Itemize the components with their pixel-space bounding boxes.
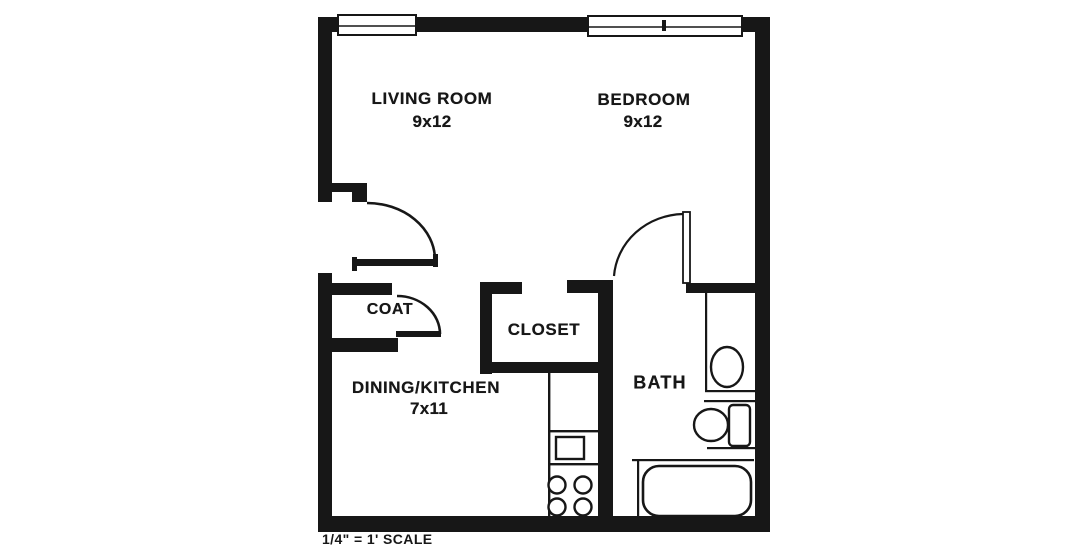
living-room-label: LIVING ROOM [372,89,493,109]
vanity-side-line [705,293,707,392]
bedroom-bath-wall [686,283,755,293]
closet-left-wall [480,282,492,374]
counter-edge-line [548,373,550,516]
bedroom-label: BEDROOM [598,90,691,110]
closet-label: CLOSET [508,320,581,340]
closet-top-wall-left [480,282,522,294]
toilet-bowl [694,409,728,441]
left-wall-lower [318,273,332,532]
dining-kitchen-dimensions: 7x11 [410,399,448,419]
bath-label: BATH [633,373,686,394]
scale-note: 1/4" = 1' SCALE [322,531,433,547]
tub-alcove-top-line [632,459,754,461]
bottom-wall [318,516,770,532]
bath-door-arc [614,214,683,276]
right-wall [755,17,770,532]
left-wall-upper [318,17,332,202]
bath-door-leaf [683,212,690,283]
floor-plan-drawing [0,0,1080,556]
tub-alcove-side-line [637,461,639,518]
range-burners [549,477,592,516]
right-window [588,16,742,36]
entry-door [352,203,438,271]
entry-door-arc [367,203,435,259]
coat-door-leaf [396,331,441,337]
window-mullion-tick [662,20,666,31]
dining-kitchen-label: DINING/KITCHEN [352,378,500,398]
toilet-alcove-bottom-line [707,447,755,449]
left-window [338,15,416,35]
vanity-sink [711,347,743,387]
toilet-tank [729,405,750,446]
bath-fixtures [632,293,755,518]
counter-divider-bottom [550,463,598,465]
vanity-front-line [705,390,755,392]
counter-divider-top [550,430,598,432]
coat-bottom-wall [328,338,398,352]
living-room-dimensions: 9x12 [412,112,451,132]
coat-top-wall [328,283,392,295]
closet-bath-wall [598,280,613,532]
entry-door-leaf [353,259,438,266]
floor-plan-page: LIVING ROOM 9x12 BEDROOM 9x12 COAT CLOSE… [0,0,1080,556]
bedroom-dimensions: 9x12 [623,112,662,132]
toilet-alcove-top-line [704,400,755,402]
coat-closet-label: COAT [367,301,414,319]
kitchen-counter [548,373,598,516]
bath-door [614,212,690,283]
closet-bottom-wall [483,362,600,373]
entry-jamb-stub [352,183,367,202]
bathtub [643,466,751,516]
kitchen-sink [556,437,584,459]
